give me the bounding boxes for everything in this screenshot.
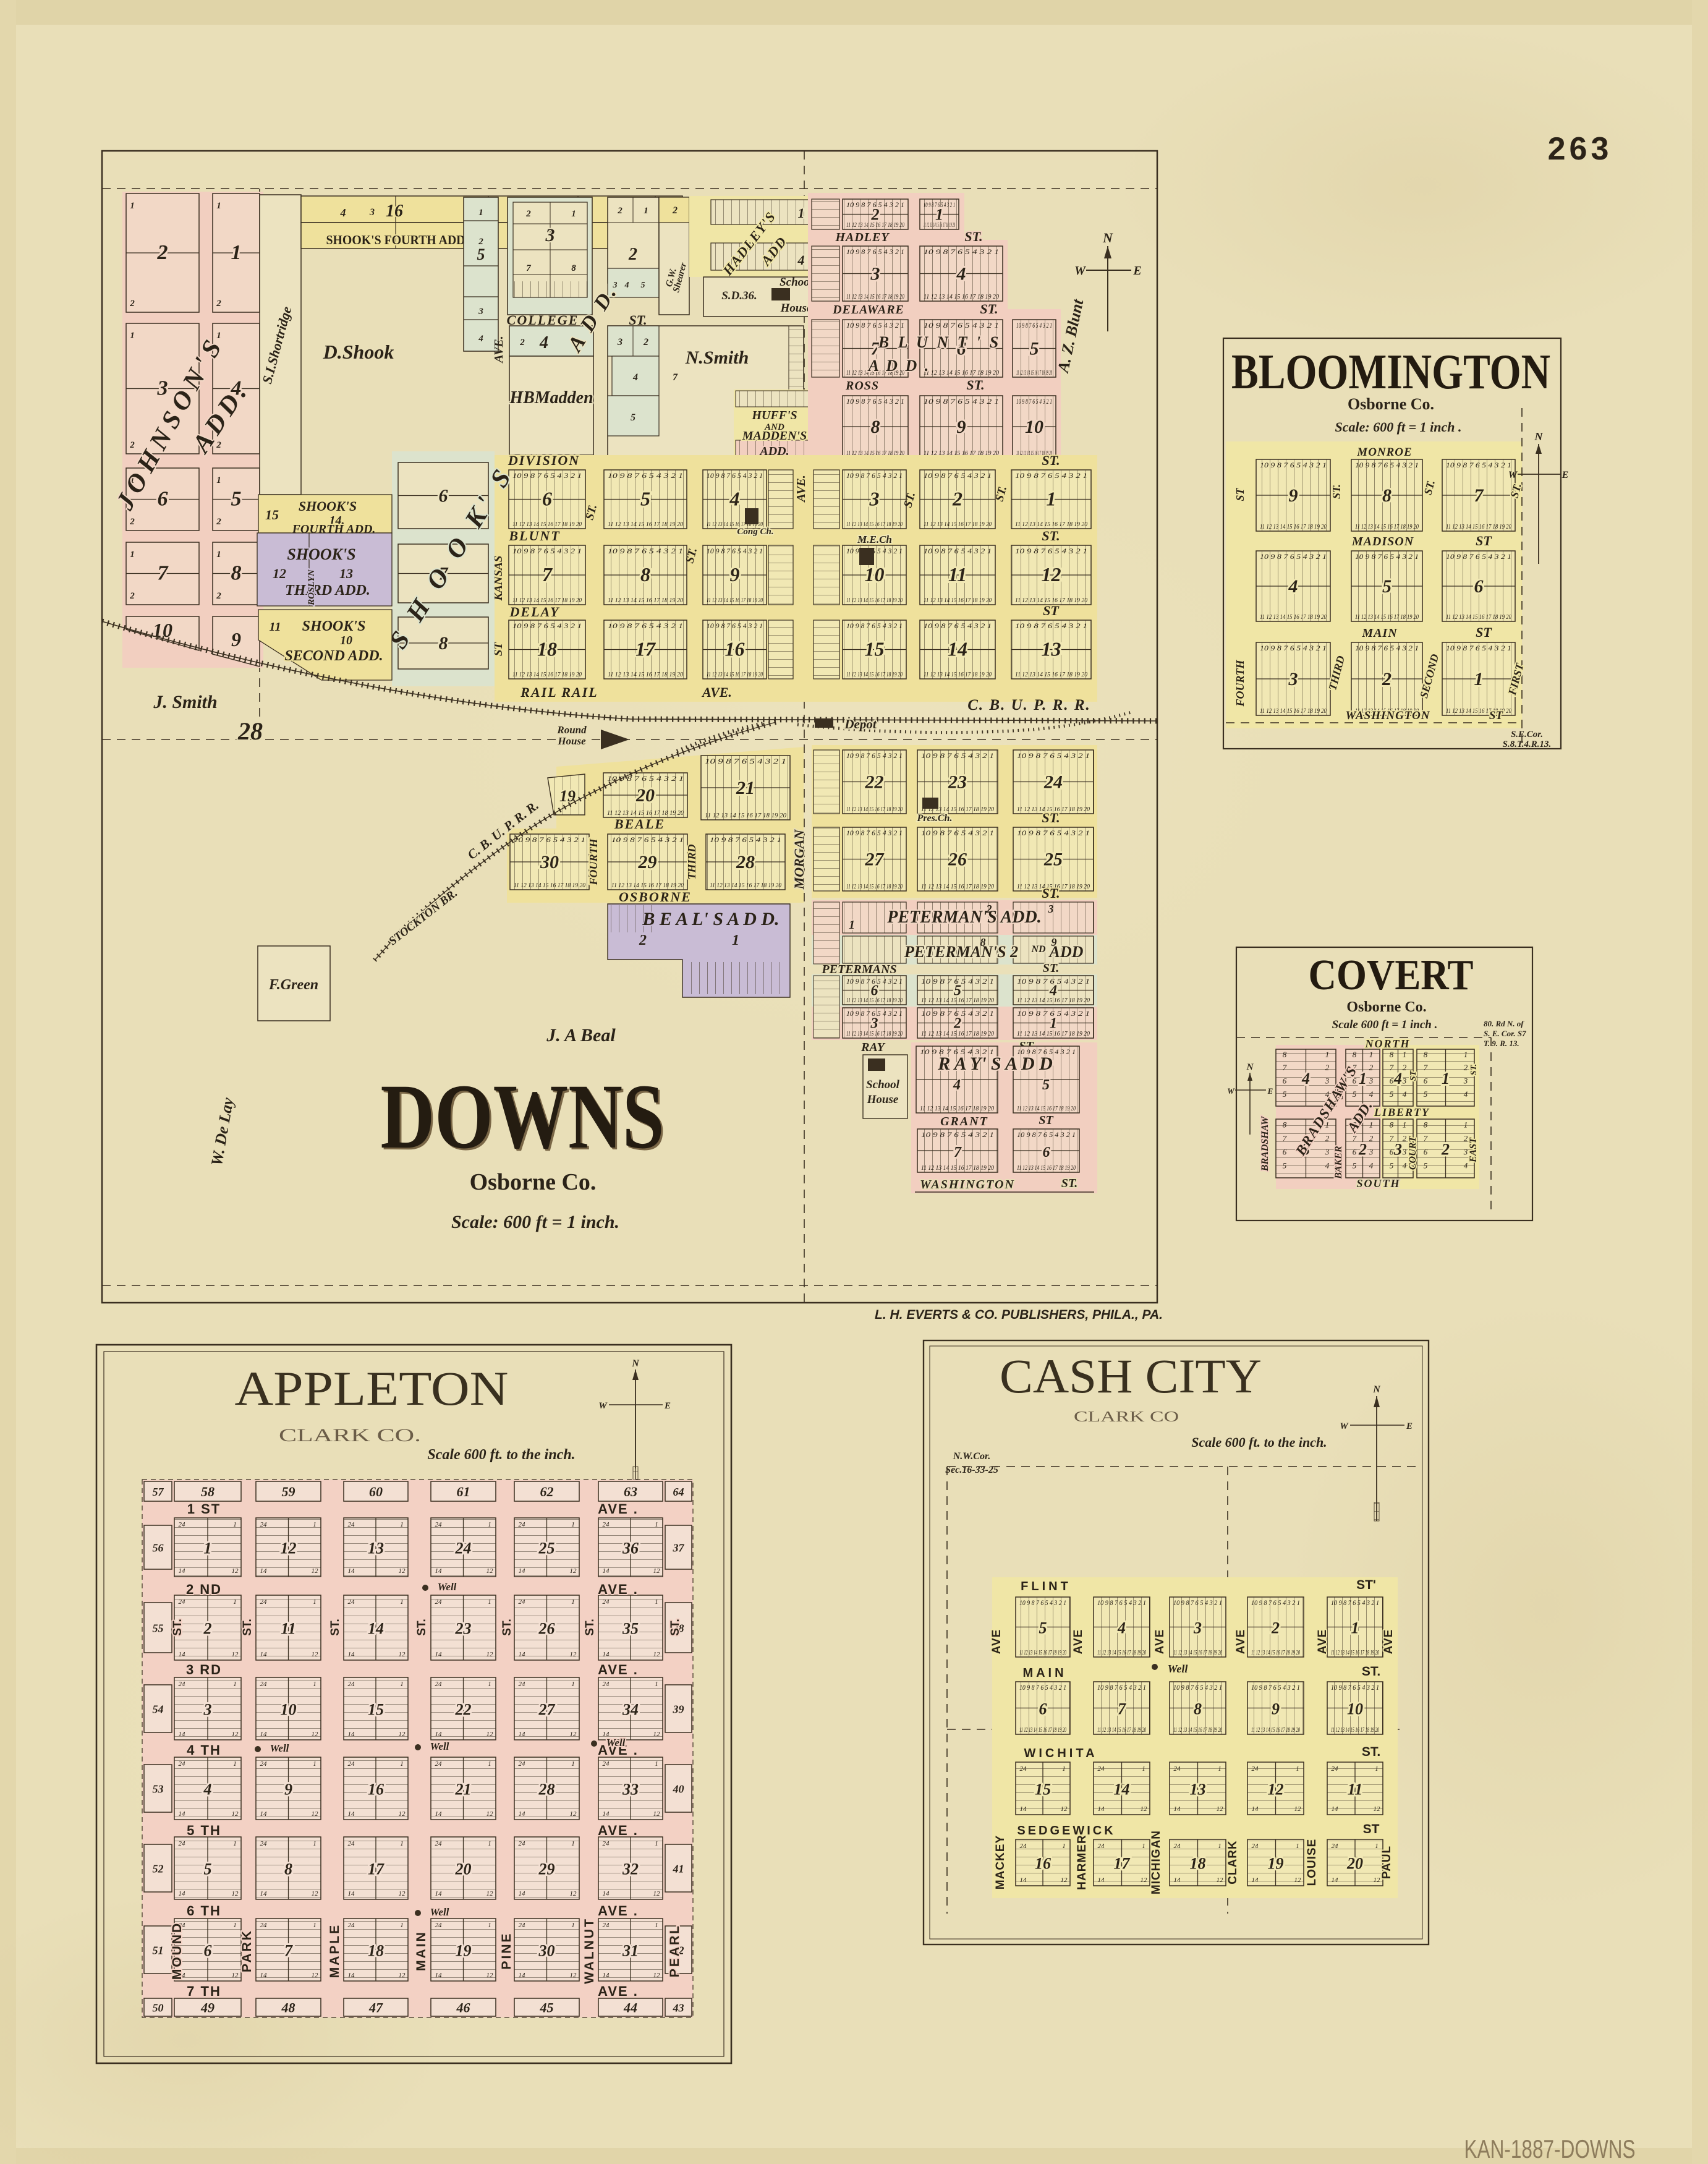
- svg-text:12: 12: [570, 1890, 577, 1898]
- svg-text:27: 27: [865, 850, 885, 870]
- svg-text:Well: Well: [430, 1906, 449, 1918]
- svg-text:14: 14: [603, 1890, 610, 1898]
- svg-text:2: 2: [1358, 1141, 1367, 1159]
- svg-text:1: 1: [130, 201, 135, 211]
- svg-text:SHOOK'S: SHOOK'S: [299, 498, 357, 514]
- svg-text:11 12 13 14 15 16 17 18 19 20: 11 12 13 14 15 16 17 18 19 20: [846, 221, 904, 229]
- svg-text:Scale: 600 ft = 1 inch.: Scale: 600 ft = 1 inch.: [451, 1212, 619, 1232]
- svg-text:52: 52: [153, 1863, 164, 1875]
- svg-text:12: 12: [653, 1731, 661, 1738]
- svg-text:MORGAN: MORGAN: [791, 829, 807, 890]
- svg-text:34: 34: [622, 1701, 639, 1719]
- svg-text:10 9 8 7 6 5 4 3 2 1: 10 9 8 7 6 5 4 3 2 1: [1017, 751, 1090, 760]
- svg-text:1: 1: [130, 331, 135, 341]
- svg-text:12: 12: [312, 1651, 319, 1658]
- svg-text:24: 24: [519, 1521, 526, 1528]
- svg-text:3: 3: [870, 264, 880, 284]
- svg-text:15: 15: [865, 638, 885, 660]
- svg-text:14: 14: [260, 1890, 268, 1898]
- svg-text:9: 9: [1272, 1700, 1280, 1718]
- svg-text:ST: ST: [1363, 1822, 1380, 1836]
- svg-text:S. E. Cor. S7: S. E. Cor. S7: [1484, 1029, 1526, 1038]
- svg-text:20: 20: [635, 785, 655, 806]
- svg-text:10 9 8 7 6 5 4 3 2 1: 10 9 8 7 6 5 4 3 2 1: [924, 471, 992, 480]
- svg-text:14: 14: [368, 1620, 384, 1638]
- svg-text:1: 1: [732, 932, 739, 948]
- svg-text:CLARK CO.: CLARK CO.: [279, 1425, 421, 1446]
- svg-text:10 9 8 7 6 5 4 3 2 1: 10 9 8 7 6 5 4 3 2 1: [846, 1009, 903, 1018]
- svg-text:12: 12: [312, 1972, 319, 1979]
- svg-text:20: 20: [455, 1860, 472, 1878]
- svg-text:ST: ST: [1476, 624, 1492, 640]
- svg-text:10 9 8 7 6 5 4 3 2 1: 10 9 8 7 6 5 4 3 2 1: [611, 835, 684, 844]
- svg-text:10 9 8 7 6 5 4 3 2 1: 10 9 8 7 6 5 4 3 2 1: [1251, 1598, 1300, 1607]
- svg-text:2: 2: [216, 591, 221, 601]
- svg-text:19: 19: [1268, 1855, 1284, 1873]
- svg-text:12: 12: [1217, 1876, 1224, 1884]
- svg-text:14: 14: [348, 1567, 355, 1575]
- svg-text:14: 14: [348, 1890, 355, 1898]
- svg-text:Well: Well: [270, 1742, 289, 1754]
- svg-text:24: 24: [519, 1760, 526, 1768]
- svg-text:1: 1: [1442, 1070, 1450, 1088]
- svg-text:28: 28: [237, 717, 263, 745]
- svg-text:10 9 8 7 6 5 4 3 2 1: 10 9 8 7 6 5 4 3 2 1: [1446, 461, 1511, 469]
- svg-text:10 9 8 7 6 5 4 3 2 1: 10 9 8 7 6 5 4 3 2 1: [1173, 1683, 1222, 1692]
- svg-text:15: 15: [368, 1701, 384, 1719]
- svg-text:7: 7: [673, 372, 678, 383]
- svg-text:56: 56: [153, 1542, 164, 1554]
- svg-text:COVERT: COVERT: [1309, 952, 1474, 999]
- svg-text:10 9 8 7 6 5 4 3 2 1: 10 9 8 7 6 5 4 3 2 1: [846, 247, 904, 256]
- svg-text:9: 9: [284, 1781, 292, 1799]
- svg-text:24: 24: [260, 1598, 268, 1606]
- svg-text:2: 2: [952, 488, 962, 510]
- svg-text:14: 14: [179, 1567, 186, 1575]
- svg-text:28: 28: [538, 1781, 555, 1799]
- svg-text:11 12 13 14 15 16 17 18 19 20: 11 12 13 14 15 16 17 18 19 20: [707, 597, 763, 604]
- svg-text:10 9 8 7 6 5 4 3 2 1: 10 9 8 7 6 5 4 3 2 1: [707, 471, 763, 480]
- svg-text:1: 1: [313, 1922, 317, 1929]
- svg-text:4: 4: [729, 488, 740, 510]
- svg-text:5: 5: [641, 281, 645, 290]
- svg-text:11 12 13 14 15 16 17 18 19 20: 11 12 13 14 15 16 17 18 19 20: [1017, 1105, 1076, 1112]
- svg-text:12: 12: [653, 1890, 661, 1898]
- svg-text:10 9 8 7 6 5 4 3 2 1: 10 9 8 7 6 5 4 3 2 1: [514, 835, 585, 844]
- svg-text:12: 12: [273, 566, 286, 581]
- svg-text:10: 10: [1347, 1700, 1363, 1718]
- svg-text:16: 16: [368, 1781, 384, 1799]
- svg-text:1: 1: [1047, 488, 1056, 510]
- svg-text:3: 3: [478, 307, 483, 317]
- svg-text:MONROE: MONROE: [1356, 446, 1412, 459]
- svg-text:L. H. EVERTS & CO. PUBLISHERS,: L. H. EVERTS & CO. PUBLISHERS, PHILA., P…: [875, 1308, 1163, 1322]
- svg-text:1: 1: [204, 1540, 212, 1557]
- svg-text:24: 24: [435, 1840, 443, 1847]
- svg-text:39: 39: [673, 1703, 684, 1716]
- svg-text:J. Smith: J. Smith: [153, 692, 217, 712]
- svg-text:31: 31: [622, 1942, 639, 1960]
- svg-text:11 12 13 14 15 16 17 18 19 20: 11 12 13 14 15 16 17 18 19 20: [512, 521, 582, 528]
- svg-text:2: 2: [1369, 1063, 1374, 1072]
- svg-text:24: 24: [519, 1598, 526, 1606]
- svg-text:24: 24: [603, 1681, 610, 1688]
- svg-text:17: 17: [635, 638, 656, 660]
- svg-text:12: 12: [232, 1972, 239, 1979]
- svg-text:17: 17: [1114, 1855, 1131, 1873]
- svg-text:3: 3: [1393, 1141, 1402, 1159]
- svg-text:3: 3: [1402, 1076, 1407, 1086]
- svg-text:11 12 13 14 15 16 17 18 19 20: 11 12 13 14 15 16 17 18 19 20: [1251, 1649, 1300, 1656]
- svg-text:8: 8: [640, 563, 650, 586]
- svg-text:11 12 13 14 15 16 17 18 19 20: 11 12 13 14 15 16 17 18 19 20: [924, 369, 999, 377]
- svg-text:10 9 8 7 6 5 4 3 2 1: 10 9 8 7 6 5 4 3 2 1: [607, 774, 684, 783]
- svg-text:4: 4: [1288, 576, 1298, 597]
- svg-text:8: 8: [871, 417, 880, 437]
- svg-text:7 TH: 7 TH: [187, 1983, 221, 1999]
- svg-text:14: 14: [1020, 1876, 1027, 1884]
- svg-text:PEARL: PEARL: [668, 1924, 682, 1977]
- svg-text:11 12 13 14 15 16 17 18 19 20: 11 12 13 14 15 16 17 18 19 20: [1331, 1726, 1379, 1734]
- svg-text:1: 1: [488, 1760, 491, 1768]
- svg-text:28: 28: [736, 852, 755, 872]
- svg-text:24: 24: [603, 1760, 610, 1768]
- svg-text:ST.: ST.: [329, 1619, 342, 1635]
- svg-text:AVE .: AVE .: [598, 1501, 639, 1517]
- svg-text:24: 24: [1098, 1765, 1105, 1773]
- svg-text:24: 24: [1174, 1842, 1181, 1850]
- svg-text:12: 12: [1294, 1876, 1302, 1884]
- svg-text:B E A L' S A D D.: B E A L' S A D D.: [642, 909, 779, 929]
- svg-text:16: 16: [1035, 1855, 1051, 1873]
- svg-text:24: 24: [179, 1840, 186, 1847]
- svg-text:8: 8: [1283, 1050, 1287, 1059]
- svg-text:12: 12: [653, 1651, 661, 1658]
- svg-text:14: 14: [1114, 1781, 1130, 1799]
- svg-text:10 9 8 7 6 5 4 3 2 1: 10 9 8 7 6 5 4 3 2 1: [1097, 1598, 1146, 1607]
- svg-text:11 12 13 14 15 16 17 18 19 20: 11 12 13 14 15 16 17 18 19 20: [846, 1030, 903, 1037]
- svg-text:14: 14: [179, 1651, 186, 1658]
- svg-text:11 12 13 14 15 16 17 18 19 20: 11 12 13 14 15 16 17 18 19 20: [924, 521, 992, 528]
- svg-text:62: 62: [540, 1484, 554, 1499]
- svg-text:W: W: [1340, 1421, 1349, 1431]
- svg-text:10: 10: [1025, 417, 1043, 437]
- svg-text:24: 24: [260, 1521, 268, 1528]
- svg-text:1 ST: 1 ST: [187, 1501, 221, 1517]
- svg-text:FOURTH: FOURTH: [587, 838, 600, 886]
- svg-text:AVE .: AVE .: [598, 1662, 639, 1677]
- svg-text:11 12 13 14 15 16 17 18 19 20: 11 12 13 14 15 16 17 18 19 20: [846, 521, 903, 528]
- svg-text:11 12 13 14 15 16 17 18 19 20: 11 12 13 14 15 16 17 18 19 20: [846, 997, 903, 1004]
- svg-text:House: House: [780, 302, 812, 315]
- svg-text:6: 6: [1283, 1147, 1287, 1156]
- svg-text:24: 24: [435, 1681, 443, 1688]
- svg-text:12: 12: [1061, 1805, 1068, 1813]
- svg-text:10 9 8 7 6 5 4 3 2 1: 10 9 8 7 6 5 4 3 2 1: [608, 471, 683, 480]
- svg-text:CLARK: CLARK: [1226, 1840, 1239, 1885]
- svg-text:11 12 13 14 15 16 17 18 19 20: 11 12 13 14 15 16 17 18 19 20: [705, 812, 786, 819]
- svg-text:COURT: COURT: [1408, 1136, 1418, 1170]
- svg-text:10 9 8 7 6 5 4 3 2 1: 10 9 8 7 6 5 4 3 2 1: [707, 547, 763, 555]
- svg-text:10 9 8 7 6 5 4 3 2 1: 10 9 8 7 6 5 4 3 2 1: [846, 397, 904, 406]
- svg-text:MAIN: MAIN: [414, 1930, 428, 1971]
- svg-text:24: 24: [1020, 1842, 1027, 1850]
- svg-text:14: 14: [519, 1890, 526, 1898]
- svg-text:7: 7: [1118, 1700, 1126, 1718]
- svg-text:11 12 13 14 15 16 17 18 19 20: 11 12 13 14 15 16 17 18 19 20: [1173, 1649, 1222, 1656]
- svg-text:24: 24: [603, 1598, 610, 1606]
- svg-text:14: 14: [260, 1651, 268, 1658]
- svg-text:9: 9: [1052, 936, 1057, 948]
- svg-text:8: 8: [1424, 1050, 1428, 1059]
- svg-text:9: 9: [1289, 485, 1298, 506]
- svg-text:ST: ST: [1489, 709, 1504, 722]
- svg-text:N: N: [1372, 1384, 1381, 1395]
- svg-text:E: E: [1561, 470, 1569, 480]
- svg-text:5: 5: [1283, 1161, 1287, 1170]
- svg-text:T. 9. R. 13.: T. 9. R. 13.: [1484, 1039, 1519, 1048]
- svg-text:EAST: EAST: [1468, 1137, 1479, 1163]
- svg-text:DELAWARE: DELAWARE: [832, 303, 904, 317]
- svg-text:12: 12: [281, 1540, 297, 1557]
- svg-text:24: 24: [603, 1840, 610, 1847]
- svg-text:HBMadden: HBMadden: [509, 388, 593, 407]
- svg-text:ST.: ST.: [1362, 1745, 1380, 1759]
- svg-text:1: 1: [655, 1760, 658, 1768]
- svg-text:ROSLYN: ROSLYN: [307, 569, 317, 606]
- svg-text:APPLETON: APPLETON: [235, 1361, 509, 1415]
- svg-text:11 12 13 14 15 16 17 18 19 20: 11 12 13 14 15 16 17 18 19 20: [514, 882, 585, 889]
- svg-text:24: 24: [260, 1840, 268, 1847]
- svg-text:ST: ST: [1476, 533, 1492, 548]
- svg-text:20: 20: [1346, 1855, 1363, 1873]
- svg-text:22: 22: [865, 772, 884, 793]
- svg-text:ST.: ST.: [1042, 453, 1060, 468]
- svg-text:1: 1: [478, 208, 483, 218]
- svg-text:10 9 8 7 6 5 4 3 2 1: 10 9 8 7 6 5 4 3 2 1: [1355, 552, 1419, 561]
- svg-text:10 9 8 7 6 5 4 3 2 1: 10 9 8 7 6 5 4 3 2 1: [705, 757, 786, 765]
- svg-text:MICHIGAN: MICHIGAN: [1150, 1830, 1163, 1894]
- svg-text:5: 5: [1039, 1619, 1047, 1637]
- svg-text:AVE: AVE: [990, 1629, 1003, 1655]
- svg-text:1: 1: [400, 1598, 404, 1606]
- svg-text:14: 14: [435, 1731, 443, 1738]
- svg-text:18: 18: [368, 1942, 384, 1960]
- svg-text:12: 12: [399, 1731, 406, 1738]
- svg-text:12: 12: [399, 1567, 406, 1575]
- svg-text:ST: ST: [1043, 603, 1060, 618]
- svg-text:ROSS: ROSS: [845, 379, 879, 393]
- svg-text:7: 7: [158, 562, 169, 585]
- svg-text:14: 14: [1332, 1876, 1339, 1884]
- svg-text:N: N: [1534, 430, 1544, 443]
- svg-text:10 9 8 7 6 5 4 3 2 1: 10 9 8 7 6 5 4 3 2 1: [1015, 471, 1087, 480]
- svg-text:4: 4: [539, 333, 548, 352]
- svg-text:5: 5: [231, 488, 242, 511]
- svg-text:2: 2: [478, 237, 483, 247]
- svg-text:14: 14: [519, 1972, 526, 1979]
- svg-text:24: 24: [455, 1540, 472, 1557]
- svg-text:10 9 8 7 6 5 4 3 2 1: 10 9 8 7 6 5 4 3 2 1: [1016, 397, 1052, 406]
- svg-text:Cong Ch.: Cong Ch.: [737, 527, 773, 537]
- svg-text:N.W.Cor.: N.W.Cor.: [953, 1451, 991, 1462]
- svg-text:14: 14: [519, 1810, 526, 1818]
- svg-text:8: 8: [980, 936, 986, 948]
- svg-text:36: 36: [622, 1540, 639, 1557]
- svg-text:CLARK CO: CLARK CO: [1074, 1409, 1179, 1425]
- svg-text:R A Y' S A D D: R A Y' S A D D: [937, 1054, 1053, 1074]
- svg-text:E: E: [664, 1401, 671, 1411]
- svg-text:14: 14: [1098, 1805, 1105, 1813]
- svg-text:S.8.T.4.R.13.: S.8.T.4.R.13.: [1503, 739, 1552, 749]
- svg-text:AVE .: AVE .: [598, 1903, 639, 1919]
- svg-text:12: 12: [570, 1810, 577, 1818]
- svg-text:45: 45: [540, 2000, 554, 2016]
- svg-text:8: 8: [1424, 1120, 1428, 1129]
- svg-text:Round: Round: [556, 724, 587, 736]
- svg-text:1: 1: [313, 1681, 317, 1688]
- svg-text:N: N: [1246, 1062, 1254, 1072]
- svg-text:11 12 13 14 15 16 17 18 19 20: 11 12 13 14 15 16 17 18 19 20: [710, 882, 781, 889]
- svg-text:19: 19: [456, 1942, 472, 1960]
- svg-text:ST.: ST.: [669, 1619, 682, 1635]
- svg-text:2: 2: [1464, 1063, 1468, 1072]
- svg-text:1: 1: [233, 1598, 237, 1606]
- svg-text:Pres.Ch.: Pres.Ch.: [917, 813, 953, 824]
- svg-text:5: 5: [1424, 1161, 1428, 1170]
- svg-text:2: 2: [129, 440, 135, 450]
- svg-text:5: 5: [631, 412, 635, 423]
- svg-text:11 12 13 14 15 16 17 18 19 20: 11 12 13 14 15 16 17 18 19 20: [924, 597, 992, 604]
- svg-text:ST.: ST.: [966, 377, 984, 393]
- svg-text:10 9 8 7 6 5 4 3 2 1: 10 9 8 7 6 5 4 3 2 1: [921, 1130, 994, 1139]
- svg-text:10 9 8 7 6 5 4 3 2 1: 10 9 8 7 6 5 4 3 2 1: [1331, 1683, 1379, 1692]
- svg-text:8: 8: [1283, 1120, 1287, 1129]
- svg-text:14: 14: [260, 1731, 268, 1738]
- svg-text:3: 3: [1048, 903, 1054, 915]
- svg-text:2: 2: [628, 245, 637, 264]
- svg-text:10 9 8 7 6 5 4 3 2 1: 10 9 8 7 6 5 4 3 2 1: [1017, 1009, 1090, 1018]
- svg-text:6: 6: [1039, 1700, 1047, 1718]
- svg-text:12: 12: [486, 1810, 494, 1818]
- svg-text:3: 3: [545, 225, 555, 245]
- svg-text:12: 12: [312, 1731, 319, 1738]
- svg-text:11 12 13 14 15 16 17 18 19 20: 11 12 13 14 15 16 17 18 19 20: [1097, 1726, 1146, 1734]
- svg-text:24: 24: [179, 1521, 186, 1528]
- svg-text:ST.: ST.: [415, 1619, 428, 1635]
- svg-text:24: 24: [519, 1681, 526, 1688]
- svg-text:4: 4: [1393, 1070, 1402, 1088]
- svg-text:1: 1: [231, 241, 242, 264]
- svg-text:5: 5: [1353, 1089, 1357, 1099]
- svg-text:18: 18: [537, 638, 557, 660]
- svg-text:1: 1: [644, 206, 648, 216]
- svg-text:6: 6: [204, 1942, 212, 1960]
- svg-text:24: 24: [348, 1760, 355, 1768]
- svg-text:8: 8: [439, 633, 448, 654]
- svg-text:E: E: [1132, 264, 1141, 278]
- svg-text:12: 12: [232, 1731, 239, 1738]
- svg-text:24: 24: [1332, 1842, 1339, 1850]
- svg-text:12: 12: [1374, 1805, 1381, 1813]
- svg-text:10 9 8 7 6 5 4 3 2 1: 10 9 8 7 6 5 4 3 2 1: [1446, 552, 1511, 561]
- svg-text:10 9 8 7 6 5 4 3 2 1: 10 9 8 7 6 5 4 3 2 1: [1097, 1683, 1146, 1692]
- svg-text:1: 1: [655, 1681, 658, 1688]
- svg-text:3: 3: [1325, 1076, 1330, 1086]
- svg-text:AVE.: AVE.: [794, 475, 808, 503]
- svg-text:RAIL RAIL: RAIL RAIL: [520, 684, 598, 700]
- svg-text:6: 6: [1424, 1076, 1428, 1086]
- svg-text:7: 7: [1474, 485, 1484, 506]
- svg-text:1: 1: [1142, 1765, 1145, 1773]
- svg-text:14: 14: [1098, 1876, 1105, 1884]
- svg-text:10 9 8 7 6 5 4 3 2 1: 10 9 8 7 6 5 4 3 2 1: [1355, 644, 1419, 652]
- svg-text:1: 1: [313, 1760, 317, 1768]
- svg-text:10 9 8 7 6 5 4 3 2 1: 10 9 8 7 6 5 4 3 2 1: [1260, 461, 1327, 469]
- svg-text:14: 14: [1252, 1805, 1259, 1813]
- svg-text:10 9 8 7 6 5 4 3 2 1: 10 9 8 7 6 5 4 3 2 1: [1331, 1598, 1379, 1607]
- svg-text:24: 24: [519, 1922, 526, 1929]
- svg-text:1: 1: [400, 1840, 404, 1847]
- svg-text:2: 2: [1325, 1133, 1330, 1143]
- svg-text:Well: Well: [430, 1740, 449, 1752]
- svg-text:13: 13: [368, 1540, 384, 1557]
- svg-text:1: 1: [313, 1840, 317, 1847]
- svg-text:18: 18: [1190, 1855, 1206, 1873]
- svg-text:1: 1: [1218, 1765, 1222, 1773]
- svg-text:10 9 8 7 6 5 4 3 2 1: 10 9 8 7 6 5 4 3 2 1: [846, 751, 903, 760]
- svg-text:10: 10: [865, 563, 885, 586]
- svg-text:12: 12: [570, 1567, 577, 1575]
- svg-text:1: 1: [400, 1681, 404, 1688]
- svg-text:12: 12: [653, 1567, 661, 1575]
- svg-text:12: 12: [1374, 1876, 1381, 1884]
- svg-text:ST: ST: [1039, 1114, 1053, 1127]
- svg-text:24: 24: [1332, 1765, 1339, 1773]
- svg-text:HUFF'S: HUFF'S: [751, 409, 797, 422]
- svg-text:10 9 8 7 6 5 4 3 2 1: 10 9 8 7 6 5 4 3 2 1: [846, 621, 903, 630]
- svg-text:16: 16: [386, 202, 403, 221]
- svg-text:6: 6: [542, 488, 552, 510]
- svg-text:11 12 13 14 15 16 17 18 19 20: 11 12 13 14 15 16 17 18 19 20: [512, 671, 582, 678]
- svg-text:4: 4: [797, 252, 805, 268]
- svg-text:22: 22: [455, 1701, 472, 1719]
- svg-text:11 12 13 14 15 16 17 18 19 20: 11 12 13 14 15 16 17 18 19 20: [1015, 671, 1087, 678]
- svg-text:4: 4: [956, 264, 966, 284]
- svg-text:10 9 8 7 6 5 4 3 2 1: 10 9 8 7 6 5 4 3 2 1: [924, 247, 999, 256]
- svg-text:4: 4: [478, 334, 483, 344]
- svg-text:29: 29: [638, 852, 657, 872]
- svg-text:4: 4: [1403, 1089, 1407, 1099]
- svg-text:1: 1: [488, 1521, 491, 1528]
- svg-text:1: 1: [1325, 1050, 1330, 1059]
- svg-text:1: 1: [1296, 1765, 1299, 1773]
- svg-text:2: 2: [1382, 669, 1391, 689]
- svg-text:10 9 8 7 6 5 4 3 2 1: 10 9 8 7 6 5 4 3 2 1: [921, 829, 994, 837]
- svg-text:PETERMAN'S ADD.: PETERMAN'S ADD.: [886, 908, 1041, 927]
- svg-text:4: 4: [1325, 1161, 1330, 1170]
- svg-text:10 9 8 7 6 5 4 3 2 1: 10 9 8 7 6 5 4 3 2 1: [924, 547, 992, 555]
- svg-text:WASHINGTON: WASHINGTON: [1345, 709, 1430, 722]
- svg-text:10 9 8 7 6 5 4 3 2 1: 10 9 8 7 6 5 4 3 2 1: [1251, 1683, 1300, 1692]
- svg-text:4: 4: [632, 372, 638, 383]
- svg-text:2: 2: [157, 241, 168, 264]
- svg-text:ST.: ST.: [584, 1619, 597, 1635]
- svg-text:14: 14: [519, 1651, 526, 1658]
- svg-text:10 9 8 7 6 5 4 3 2 1: 10 9 8 7 6 5 4 3 2 1: [846, 977, 903, 986]
- svg-text:E: E: [1406, 1421, 1413, 1431]
- svg-text:2: 2: [203, 1620, 212, 1638]
